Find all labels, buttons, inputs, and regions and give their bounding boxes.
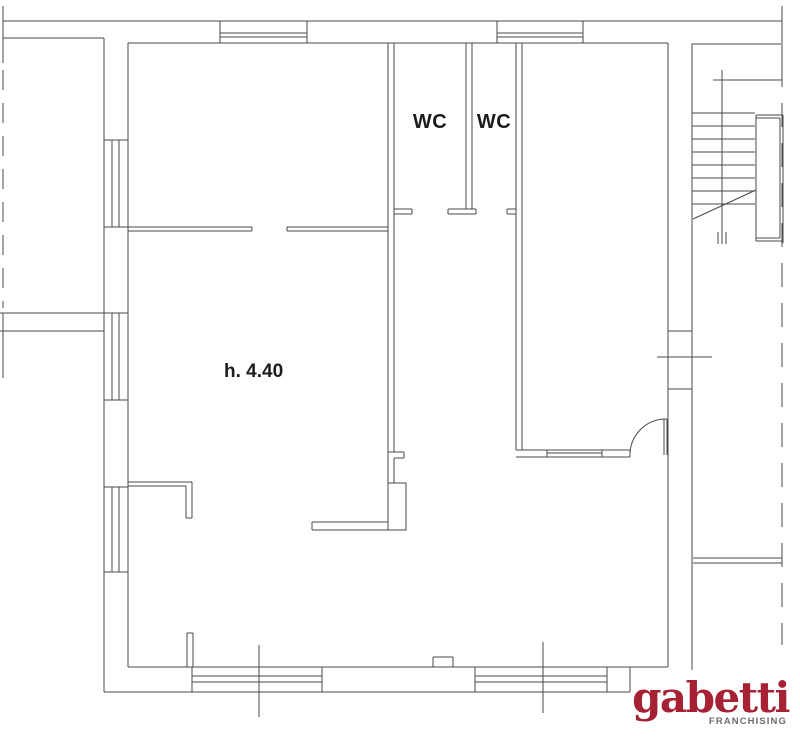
left-wall: [104, 38, 128, 692]
inner-room-wall: [516, 419, 667, 457]
staircase: [692, 44, 783, 563]
right-wall: [657, 43, 712, 670]
gabetti-logo-wordmark: gabetti: [632, 673, 789, 722]
top-wall: [128, 21, 668, 43]
interior-partitions: [128, 227, 388, 667]
floor-plan-drawing: WC WC h. 4.40 gabetti FRANCHISING: [0, 0, 800, 752]
wc-partitions: [448, 43, 522, 450]
gabetti-logo-subtitle: FRANCHISING: [709, 716, 787, 727]
floor-plan-page: WC WC h. 4.40 gabetti FRANCHISING: [0, 0, 800, 752]
spine-wall: [312, 43, 412, 530]
gabetti-logo: gabetti FRANCHISING: [632, 673, 789, 727]
ceiling-height-label: h. 4.40: [224, 361, 283, 382]
bottom-wall: [104, 642, 668, 717]
wc-label-right: WC: [477, 111, 511, 133]
wc-label-left: WC: [413, 111, 447, 133]
outer-envelope: [0, 6, 782, 645]
